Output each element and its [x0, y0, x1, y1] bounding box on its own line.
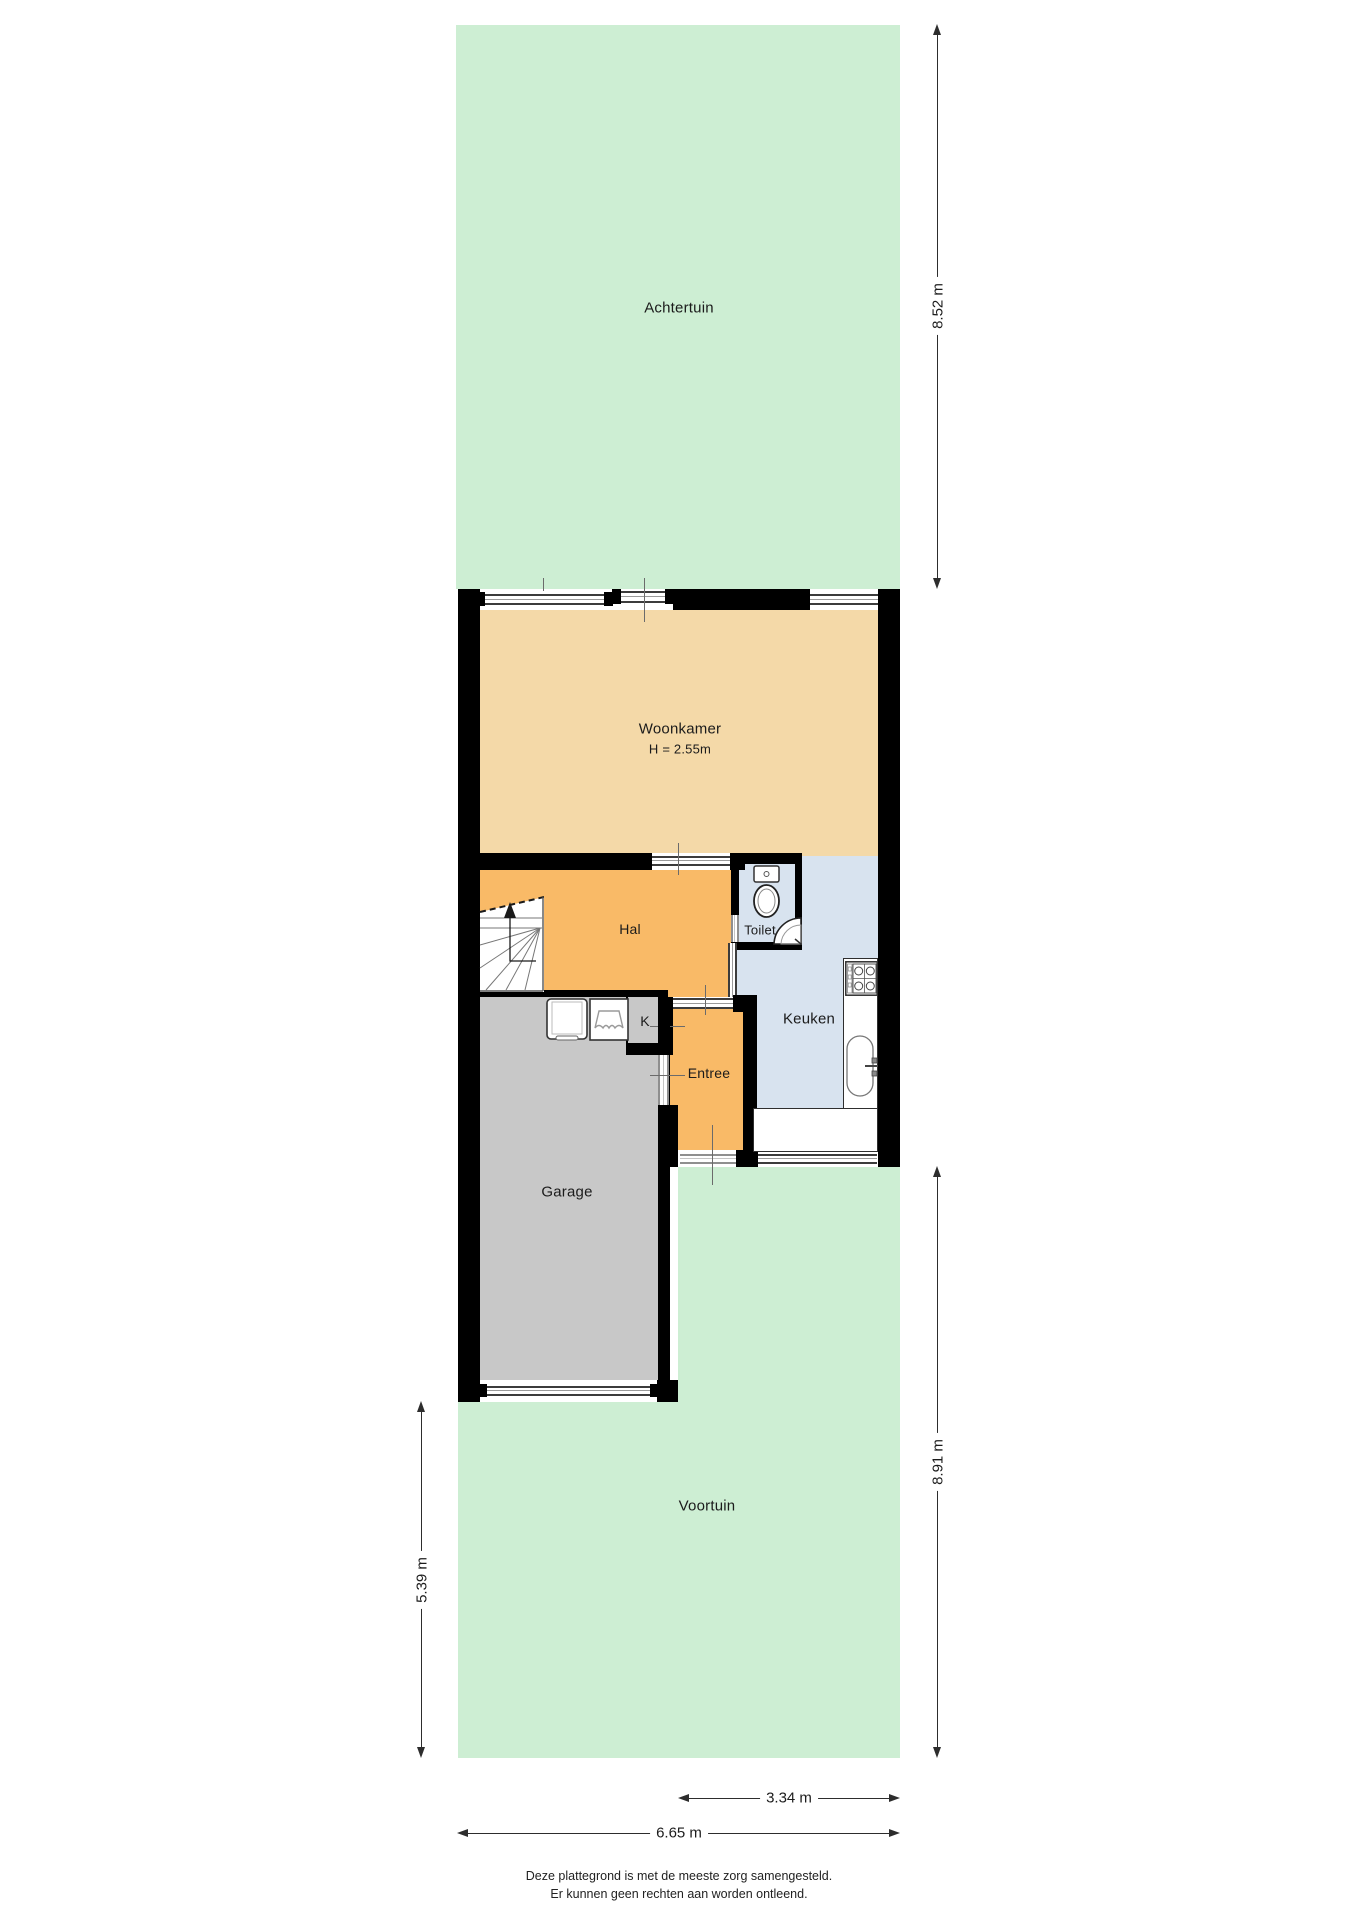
kitchen-front-window-band: [758, 1154, 877, 1164]
wall-right-exterior: [878, 589, 900, 1167]
label-closet: K: [640, 1013, 650, 1029]
arrowhead-up-icon: [933, 24, 941, 35]
arrowhead-down-icon: [933, 1747, 941, 1758]
wall-left-exterior: [458, 589, 480, 1402]
disclaimer-line-2: Er kunnen geen rechten aan worden ontlee…: [0, 1887, 1358, 1901]
label-entree: Entree: [688, 1065, 730, 1081]
arrowhead-up-icon: [933, 1166, 941, 1177]
laundry-basket-icon: [589, 998, 629, 1041]
wall-cap: [650, 1384, 657, 1397]
wall-cap: [665, 589, 674, 604]
corner-basin-icon: [773, 917, 802, 945]
arrowhead-right-icon: [889, 1794, 900, 1802]
door-tick: [678, 843, 679, 875]
arrowhead-left-icon: [457, 1829, 468, 1837]
label-kitchen: Keuken: [783, 1011, 835, 1028]
label-garage: Garage: [541, 1184, 592, 1201]
arrowhead-left-icon: [678, 1794, 689, 1802]
stove-icon: [845, 961, 878, 996]
wall-cap: [478, 592, 485, 606]
label-living-room-height: H = 2.55m: [649, 742, 711, 757]
wall-rear-segment: [673, 589, 810, 610]
hall-kitchen-glass-band: [728, 943, 737, 997]
label-toilet: Toilet: [744, 923, 776, 938]
wall-garage-front-post-inner: [658, 1105, 678, 1167]
wall-toilet-left: [731, 860, 739, 915]
wall-cap: [612, 589, 621, 604]
rear-window-band: [480, 594, 606, 605]
dimension-label-total-width: 6.65 m: [650, 1823, 708, 1844]
wall-front-post: [736, 1150, 758, 1167]
arrowhead-up-icon: [417, 1401, 425, 1412]
dimension-label-front-garden-right: 8.91 m: [928, 1433, 949, 1491]
disclaimer-line-1: Deze plattegrond is met de meeste zorg s…: [0, 1869, 1358, 1883]
front-door-band: [680, 1154, 736, 1164]
stairs-icon: [478, 890, 544, 992]
living-hall-glass-door-band: [652, 856, 730, 866]
wall-living-hall: [480, 853, 652, 870]
door-tick: [644, 578, 645, 622]
label-back-garden: Achtertuin: [644, 300, 714, 317]
hall-entree-glass-band: [673, 998, 733, 1009]
garage-entree-door-band: [658, 1055, 669, 1105]
garage-door-band: [482, 1386, 655, 1396]
door-tick: [712, 1125, 713, 1185]
label-front-garden: Voortuin: [679, 1498, 736, 1515]
arrowhead-right-icon: [889, 1829, 900, 1837]
dimension-label-front-width-partial: 3.34 m: [760, 1788, 818, 1809]
door-tick: [705, 985, 706, 1015]
window-tick: [543, 578, 544, 591]
wall-toilet-top: [737, 853, 802, 864]
dimension-label-back-garden: 8.52 m: [928, 277, 949, 335]
front-garden-area-left: [458, 1402, 678, 1758]
label-hall: Hal: [619, 921, 641, 937]
front-garden-area-right: [678, 1167, 900, 1758]
arrowhead-down-icon: [933, 578, 941, 589]
label-living-room: Woonkamer: [639, 721, 721, 738]
wall-garage-front-post-right: [657, 1380, 678, 1402]
door-tick: [650, 1075, 685, 1076]
rear-window-band-right: [810, 594, 878, 605]
washing-machine-icon: [546, 998, 588, 1043]
floor-plan-page: Achtertuin Woonkamer H = 2.55m Hal Toile…: [0, 0, 1358, 1920]
dimension-label-front-garden-left: 5.39 m: [412, 1551, 433, 1609]
toilet-door-band: [731, 915, 739, 942]
sink-icon: [845, 1034, 878, 1098]
wall-cap: [480, 1384, 487, 1397]
toilet-bowl-icon: [752, 884, 781, 919]
kitchen-counter-front: [753, 1108, 878, 1152]
arrowhead-down-icon: [417, 1747, 425, 1758]
